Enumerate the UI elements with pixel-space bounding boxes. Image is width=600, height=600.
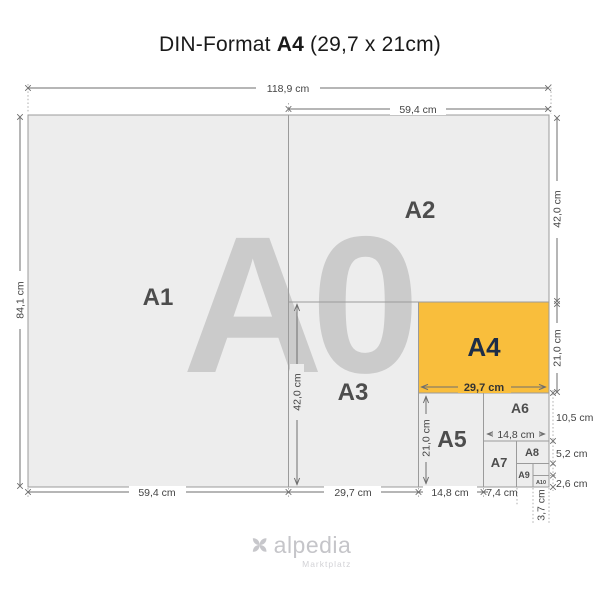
dim-label-a5-width: 14,8 cm bbox=[431, 487, 469, 499]
paper-size-diagram: A0 A1 A2 A3 A4 A5 A6 A7 A8 A9 A10 bbox=[0, 0, 600, 600]
label-a9: A9 bbox=[518, 470, 530, 480]
dim-a0-height: 84,1 cm bbox=[13, 117, 27, 486]
dim-a10-height: 2,6 cm bbox=[550, 473, 588, 490]
dim-label-a4-width: 29,7 cm bbox=[464, 382, 505, 394]
label-a5: A5 bbox=[437, 426, 467, 452]
label-a6: A6 bbox=[511, 400, 529, 416]
dim-bottom-row: 59,4 cm 29,7 cm 14,8 cm 7,4 cm bbox=[28, 486, 518, 499]
label-a8: A8 bbox=[525, 447, 539, 459]
dim-label-a4-height: 21,0 cm bbox=[552, 329, 564, 367]
label-a3: A3 bbox=[338, 379, 369, 406]
dim-label-a1-width: 59,4 cm bbox=[138, 487, 176, 499]
label-a10: A10 bbox=[536, 480, 546, 486]
dim-label-a2-width: 59,4 cm bbox=[399, 104, 437, 116]
logo-name: alpedia bbox=[274, 532, 352, 558]
dim-label-a6-height: 10,5 cm bbox=[556, 412, 594, 424]
brand-logo: alpedia Marktplatz bbox=[249, 534, 352, 569]
dim-label-a2-height: 42,0 cm bbox=[552, 190, 564, 228]
dim-label-a0-width: 118,9 cm bbox=[267, 83, 310, 95]
label-a2: A2 bbox=[405, 197, 436, 224]
dim-label-a3-width: 29,7 cm bbox=[334, 487, 372, 499]
dim-label-a10-height: 2,6 cm bbox=[556, 478, 588, 490]
logo-tagline: Marktplatz bbox=[274, 559, 352, 569]
dim-a10-width: 3,7 cm bbox=[536, 489, 548, 521]
dim-label-a0-height: 84,1 cm bbox=[15, 281, 27, 319]
dim-label-a8-height: 5,2 cm bbox=[556, 448, 588, 460]
dim-a2-width: 59,4 cm bbox=[289, 103, 549, 116]
dim-label-a10-width: 3,7 cm bbox=[536, 489, 548, 521]
dim-a6-height: 10,5 cm bbox=[550, 390, 593, 444]
dim-a2-height: 42,0 cm bbox=[550, 118, 564, 301]
label-a1: A1 bbox=[143, 284, 174, 311]
dim-a4-height: 21,0 cm bbox=[550, 304, 564, 392]
alpedia-logo-icon bbox=[249, 534, 271, 556]
label-a4: A4 bbox=[467, 332, 501, 362]
dim-label-a5-height: 21,0 cm bbox=[421, 419, 433, 457]
dim-a0-width: 118,9 cm bbox=[28, 82, 548, 95]
din-format-infographic: DIN-Format A4 (29,7 x 21cm) A0 bbox=[0, 0, 600, 600]
dim-label-a7-width: 7,4 cm bbox=[486, 487, 518, 499]
label-a7: A7 bbox=[491, 455, 508, 470]
dim-label-a6-width: 14,8 cm bbox=[497, 429, 535, 441]
dim-label-a3-height: 42,0 cm bbox=[292, 373, 304, 411]
dim-a8-height: 5,2 cm bbox=[550, 448, 588, 466]
